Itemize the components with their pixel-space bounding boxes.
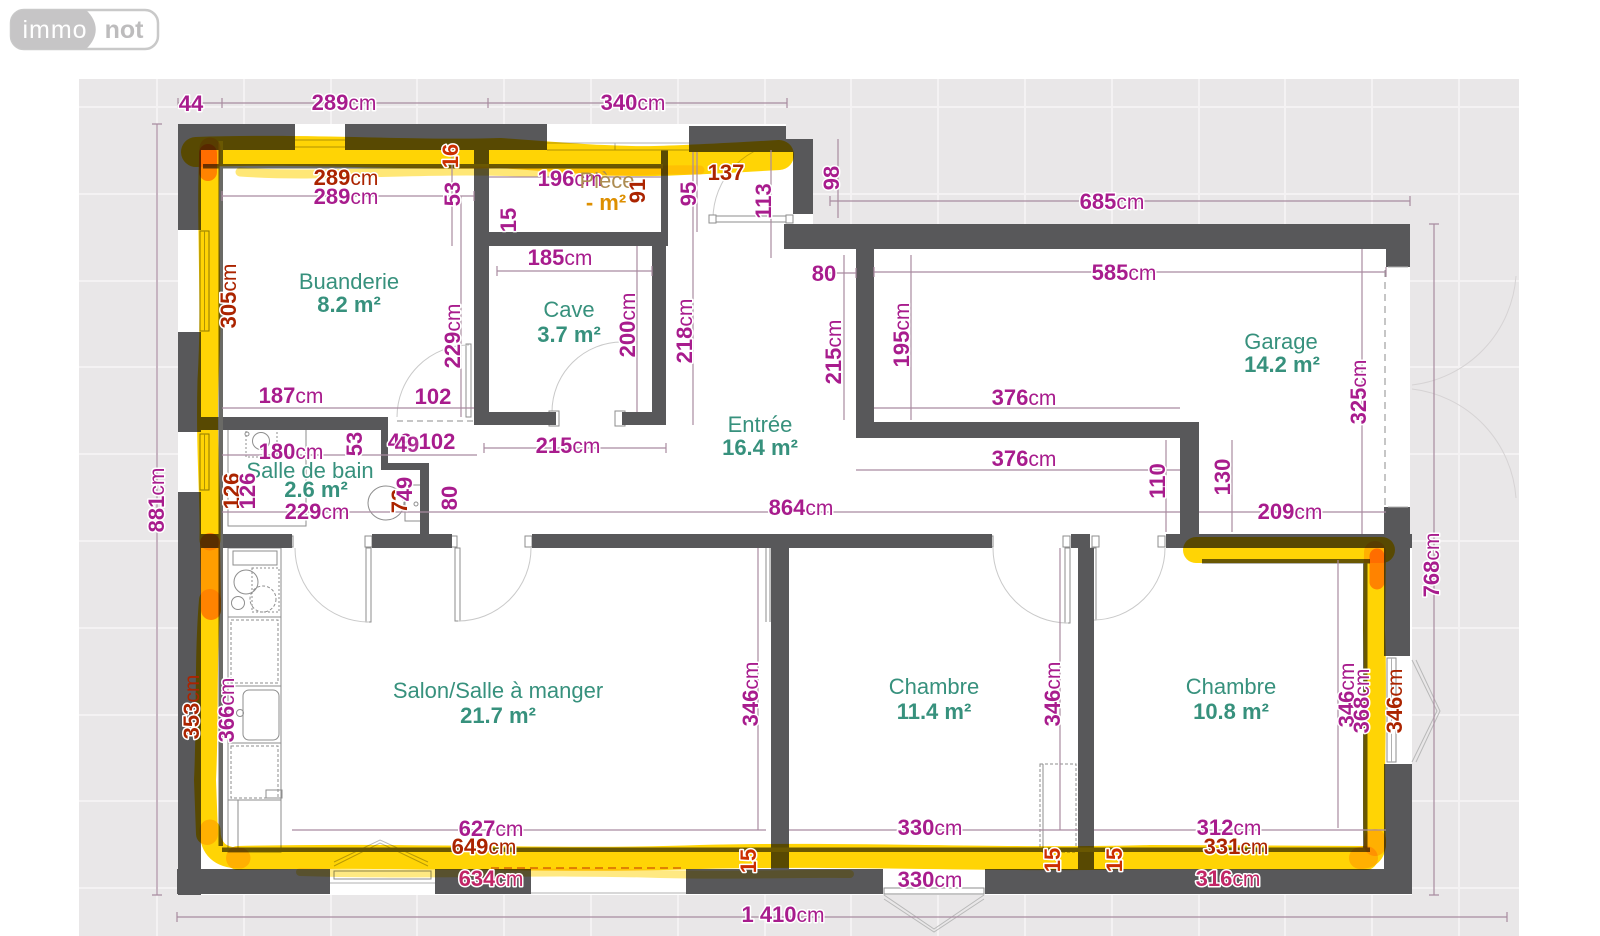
svg-text:881cm: 881cm (144, 468, 169, 533)
svg-text:330cm: 330cm (898, 815, 963, 840)
svg-text:Chambre: Chambre (889, 674, 979, 699)
svg-text:95: 95 (676, 182, 701, 206)
svg-text:91: 91 (625, 179, 650, 203)
svg-text:331cm: 331cm (1204, 834, 1269, 859)
svg-text:44: 44 (179, 91, 204, 116)
svg-text:340cm: 340cm (601, 90, 666, 115)
svg-text:102: 102 (415, 384, 452, 409)
svg-text:185cm: 185cm (528, 245, 593, 270)
svg-text:Garage: Garage (1244, 329, 1317, 354)
svg-text:15: 15 (736, 849, 761, 873)
svg-text:346cm: 346cm (1040, 662, 1065, 727)
svg-text:346cm: 346cm (1382, 669, 1407, 734)
svg-text:80: 80 (437, 486, 462, 510)
svg-text:15: 15 (496, 208, 521, 232)
svg-text:53: 53 (342, 432, 367, 456)
svg-text:15: 15 (1040, 848, 1065, 872)
svg-text:215cm: 215cm (536, 433, 601, 458)
svg-text:634cm: 634cm (459, 866, 524, 891)
svg-text:15: 15 (1102, 848, 1127, 872)
svg-text:325cm: 325cm (1346, 360, 1371, 425)
svg-text:- m²: - m² (586, 190, 626, 215)
svg-text:209cm: 209cm (1258, 499, 1323, 524)
svg-text:10.8 m²: 10.8 m² (1193, 699, 1269, 724)
svg-text:102: 102 (419, 429, 456, 454)
svg-text:98: 98 (819, 166, 844, 190)
svg-text:Buanderie: Buanderie (299, 269, 399, 294)
svg-text:not: not (105, 16, 145, 44)
svg-text:376cm: 376cm (992, 385, 1057, 410)
svg-text:Salon/Salle à manger: Salon/Salle à manger (393, 678, 603, 703)
svg-text:368cm: 368cm (1349, 669, 1374, 734)
svg-text:14.2 m²: 14.2 m² (1244, 352, 1320, 377)
svg-text:376cm: 376cm (992, 446, 1057, 471)
svg-text:Entrée: Entrée (728, 412, 793, 437)
svg-text:864cm: 864cm (769, 495, 834, 520)
svg-text:649cm: 649cm (452, 834, 517, 859)
svg-text:8.2 m²: 8.2 m² (317, 292, 381, 317)
svg-text:11.4 m²: 11.4 m² (897, 699, 972, 724)
svg-text:16: 16 (438, 144, 463, 168)
svg-text:585cm: 585cm (1092, 260, 1157, 285)
svg-text:49: 49 (392, 477, 417, 501)
svg-text:353cm: 353cm (179, 675, 204, 740)
svg-text:Cave: Cave (543, 297, 594, 322)
svg-text:289cm: 289cm (314, 184, 379, 209)
svg-text:366cm: 366cm (214, 678, 239, 743)
svg-text:685cm: 685cm (1080, 189, 1145, 214)
svg-text:200cm: 200cm (615, 293, 640, 358)
svg-text:80: 80 (812, 261, 836, 286)
svg-text:289cm: 289cm (312, 90, 377, 115)
svg-text:229cm: 229cm (440, 304, 465, 369)
svg-text:3.7 m²: 3.7 m² (537, 322, 601, 347)
svg-text:215cm: 215cm (821, 320, 846, 385)
svg-text:immo: immo (22, 16, 87, 44)
svg-text:330cm: 330cm (898, 867, 963, 892)
svg-text:346cm: 346cm (738, 662, 763, 727)
svg-text:187cm: 187cm (259, 383, 324, 408)
svg-text:229cm: 229cm (285, 499, 350, 524)
svg-text:137: 137 (708, 160, 745, 185)
svg-text:1 410cm: 1 410cm (741, 902, 824, 927)
svg-text:Chambre: Chambre (1186, 674, 1276, 699)
svg-text:305cm: 305cm (216, 264, 241, 329)
svg-text:110: 110 (1145, 463, 1170, 499)
svg-text:195cm: 195cm (889, 303, 914, 368)
svg-text:21.7 m²: 21.7 m² (460, 703, 536, 728)
svg-text:218cm: 218cm (672, 299, 697, 364)
svg-text:316cm: 316cm (1196, 866, 1261, 891)
svg-text:113: 113 (751, 183, 776, 219)
svg-text:53: 53 (440, 182, 465, 206)
svg-text:768cm: 768cm (1419, 533, 1444, 598)
svg-text:130: 130 (1210, 459, 1235, 496)
svg-text:126: 126 (235, 473, 260, 510)
svg-text:16.4 m²: 16.4 m² (722, 435, 798, 460)
svg-text:49: 49 (395, 432, 419, 457)
